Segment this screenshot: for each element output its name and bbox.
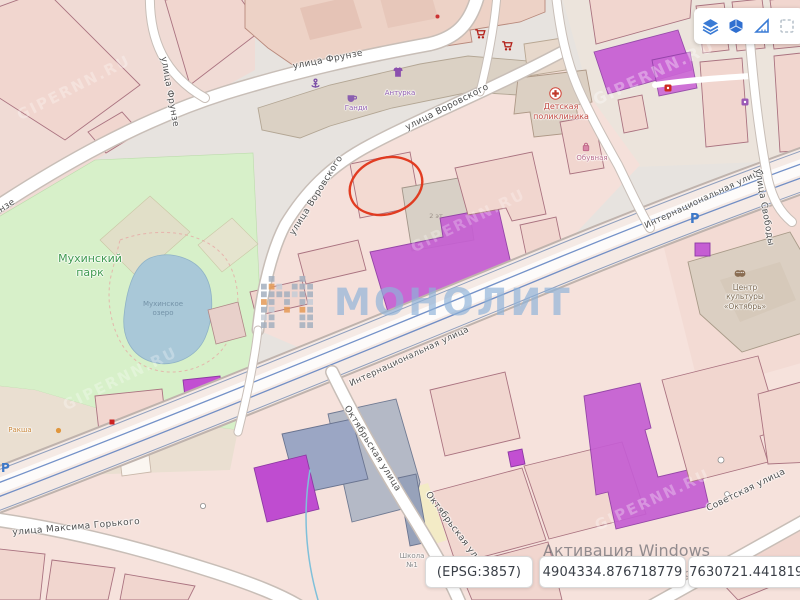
- brand-logo-icon: [254, 276, 320, 328]
- parking-icon: P: [690, 212, 700, 227]
- floors-label: 2 эт: [424, 212, 448, 220]
- theatre-masks-icon: [734, 268, 746, 279]
- poi-dot-icon: [435, 14, 440, 19]
- park-label: Мухинский парк: [48, 252, 132, 280]
- poi-orange-icon: [55, 427, 62, 434]
- map-toolbar: [694, 8, 800, 44]
- anchor-icon: [310, 78, 321, 89]
- select-area-tool-button[interactable]: [777, 16, 797, 36]
- shopping-cart-icon: [501, 40, 513, 52]
- layers-tool-button[interactable]: [701, 16, 721, 36]
- cafe-label: Ганди: [338, 104, 374, 113]
- shopping-cart-icon: [474, 28, 486, 40]
- clothes-shirt-icon: [392, 66, 404, 78]
- map-application: GIPERNN.RU GIPERNN.RU GIPERNN.RU GIPERNN…: [0, 0, 800, 600]
- shop-bag-icon: [581, 142, 591, 152]
- measure-tool-button[interactable]: [752, 16, 772, 36]
- poi-purple-icon: [741, 98, 749, 106]
- coordinate-x-readout: 4904334.876718779: [539, 556, 686, 588]
- epsg-readout: (EPSG:3857): [425, 556, 533, 588]
- cafe-cup-icon: [346, 92, 357, 103]
- shoe-shop-label: Обувная: [570, 154, 614, 163]
- 3d-buildings-tool-button[interactable]: [726, 16, 746, 36]
- brand-watermark: МОНОЛИТ: [254, 276, 573, 328]
- clinic-cross-icon: [549, 87, 562, 100]
- culture-centre-label: Центр культуры «Октябрь»: [720, 283, 770, 311]
- brand-name: МОНОЛИТ: [334, 281, 573, 324]
- pond-label: Мухинское озеро: [135, 300, 191, 318]
- clinic-label: Детская поликлиника: [520, 102, 602, 122]
- shop-poi-icon: [664, 84, 672, 92]
- parking-icon: P: [1, 461, 10, 475]
- raksha-label: Ракша: [2, 426, 38, 435]
- shop-label: Антурка: [380, 89, 420, 98]
- coordinate-y-readout: 7630721.441819922: [688, 556, 800, 588]
- poi-red-icon: [109, 419, 115, 425]
